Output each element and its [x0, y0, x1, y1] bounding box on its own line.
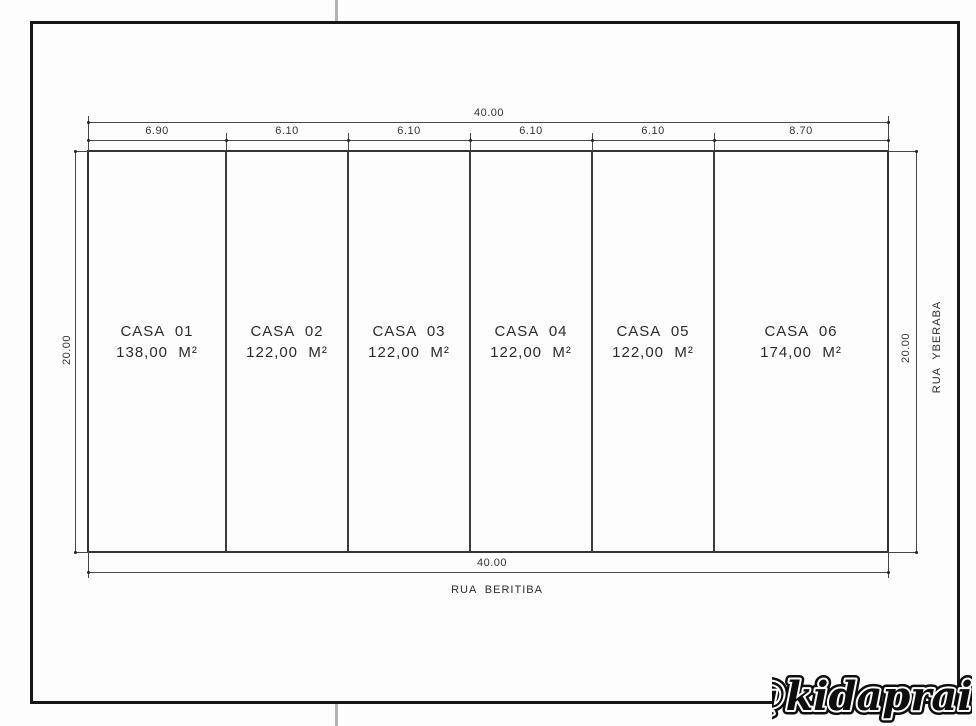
dim-total-top-label: 40.00 [474, 107, 504, 119]
lot-divider [347, 152, 349, 551]
dim-dot [591, 139, 594, 142]
lot-divider [469, 152, 471, 551]
lot-label: CASA 06174,00 M² [760, 321, 842, 363]
dim-dot [87, 139, 90, 142]
dim-dot [225, 139, 228, 142]
page: 40.00 40.00 20.00 20.00 RUA YBERABA RUA … [0, 0, 976, 726]
dim-dot [87, 571, 90, 574]
lot-divider [713, 152, 715, 551]
dim-tick [348, 133, 349, 151]
lot-label: CASA 03122,00 M² [368, 321, 450, 363]
dim-line-left [75, 151, 76, 552]
lot-label: CASA 02122,00 M² [246, 321, 328, 363]
dim-dot [887, 571, 890, 574]
lot-name: CASA 06 [760, 321, 842, 342]
lot-area: 122,00 M² [612, 342, 694, 363]
lot-area: 138,00 M² [116, 342, 198, 363]
dim-segment-label: 6.90 [145, 125, 168, 137]
lot-area: 122,00 M² [246, 342, 328, 363]
dim-dot [74, 551, 77, 554]
dim-tick [888, 552, 889, 578]
lot-name: CASA 04 [490, 321, 572, 342]
dim-line-top-segments [88, 140, 888, 141]
dim-segment-label: 8.70 [789, 125, 812, 137]
watermark: @kidapraia @kidapraia @kidapraia [772, 668, 972, 726]
dim-dot [87, 121, 90, 124]
dim-dot [74, 150, 77, 153]
dim-dot [347, 139, 350, 142]
dim-dot [887, 139, 890, 142]
ext-line-right-bottom [889, 552, 917, 553]
lot-label: CASA 04122,00 M² [490, 321, 572, 363]
lot-divider [225, 152, 227, 551]
dim-dot [713, 139, 716, 142]
lot-name: CASA 05 [612, 321, 694, 342]
dim-left-label: 20.00 [61, 335, 73, 365]
dim-tick [714, 133, 715, 151]
lot-name: CASA 03 [368, 321, 450, 342]
street-right-label: RUA YBERABA [931, 301, 943, 394]
lot-divider [591, 152, 593, 551]
lot-name: CASA 02 [246, 321, 328, 342]
dim-segment-label: 6.10 [519, 125, 542, 137]
dim-segment-label: 6.10 [397, 125, 420, 137]
watermark-text: @kidapraia [772, 673, 972, 720]
ext-line-right-top [889, 151, 917, 152]
dim-tick [88, 552, 89, 578]
dim-total-bottom-label: 40.00 [477, 557, 507, 569]
dim-right-label: 20.00 [900, 333, 912, 363]
dim-dot [887, 121, 890, 124]
dim-tick [470, 133, 471, 151]
lot-area: 174,00 M² [760, 342, 842, 363]
lot-area: 122,00 M² [490, 342, 572, 363]
dim-dot [915, 551, 918, 554]
lot-name: CASA 01 [116, 321, 198, 342]
dim-segment-label: 6.10 [641, 125, 664, 137]
dim-dot [915, 150, 918, 153]
dim-line-right [916, 151, 917, 552]
registration-tick-top [335, 0, 338, 21]
lot-label: CASA 05122,00 M² [612, 321, 694, 363]
dim-tick [226, 133, 227, 151]
dim-segment-label: 6.10 [275, 125, 298, 137]
lot-area: 122,00 M² [368, 342, 450, 363]
dim-tick [592, 133, 593, 151]
registration-tick-bottom [335, 704, 338, 726]
dim-line-top-total [88, 122, 888, 123]
dim-line-bottom-total [88, 572, 888, 573]
dim-dot [469, 139, 472, 142]
lot-label: CASA 01138,00 M² [116, 321, 198, 363]
street-bottom-label: RUA BERITIBA [451, 584, 543, 596]
